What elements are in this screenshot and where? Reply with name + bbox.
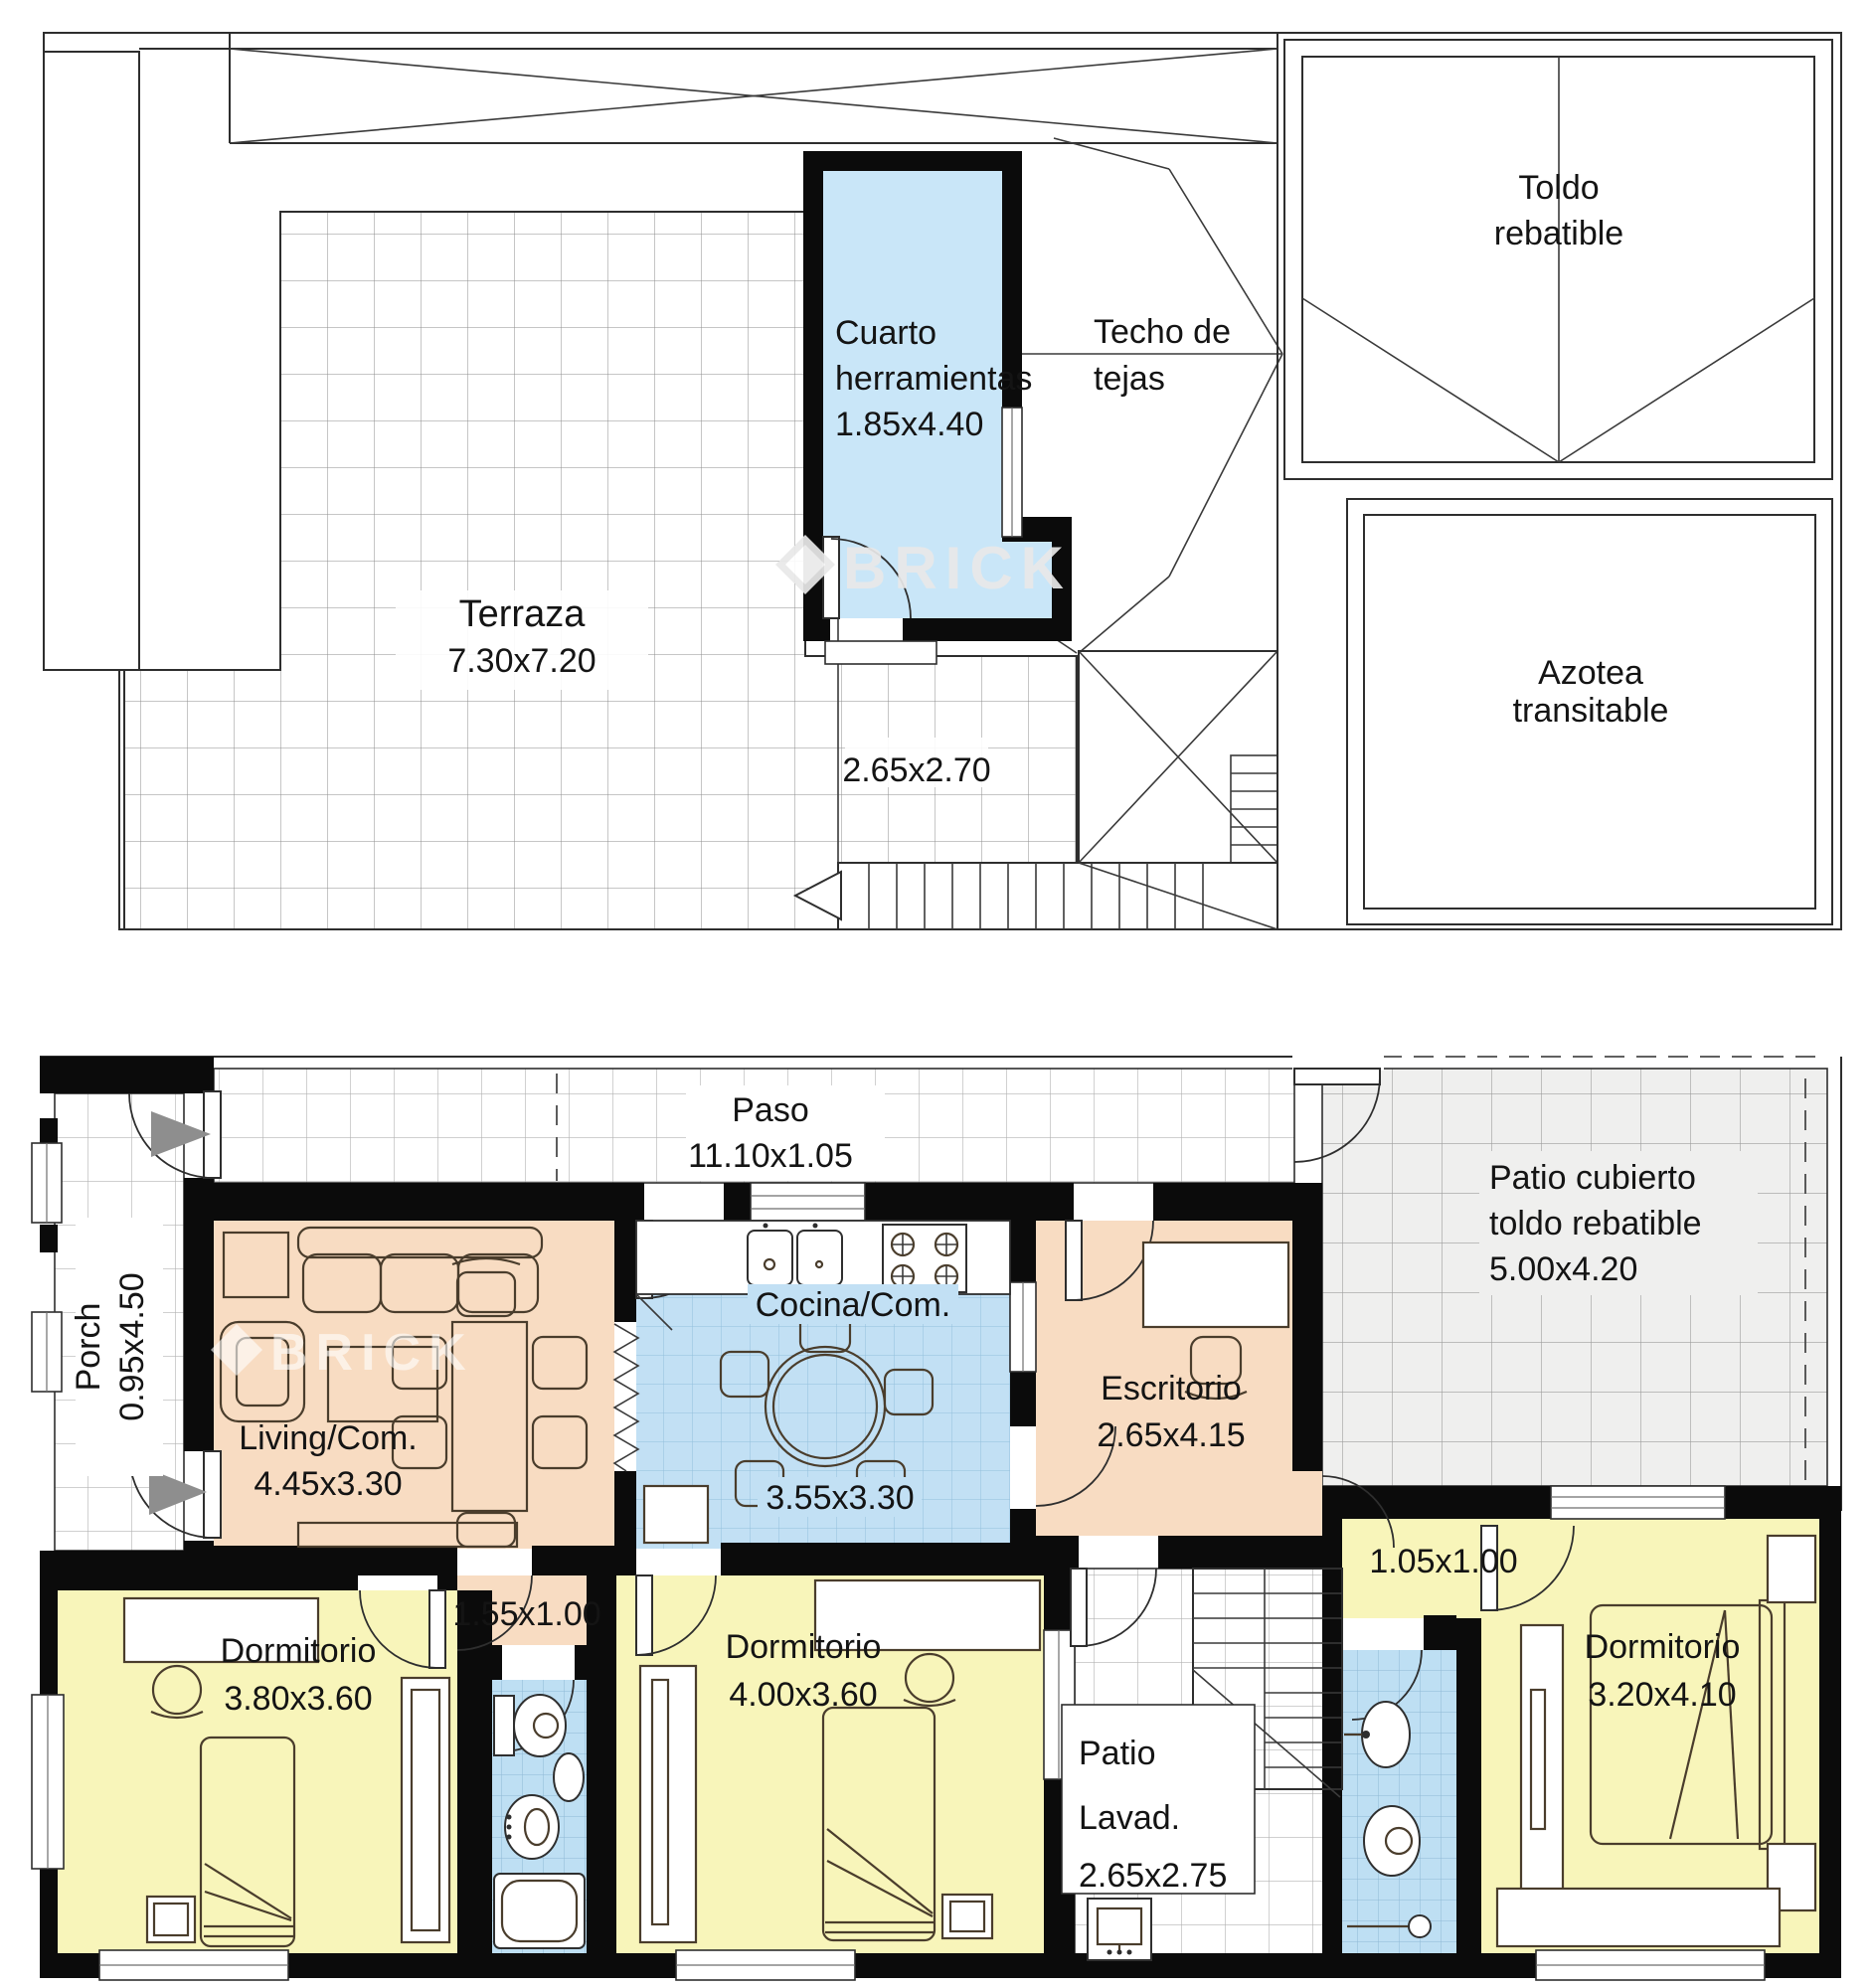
label-porch-name: Porch — [70, 1303, 107, 1392]
window — [751, 1183, 865, 1221]
door-leaf — [1071, 1569, 1087, 1646]
label-living-dims: 4.45x3.30 — [254, 1465, 402, 1503]
label-upper-patio-dims: 2.65x2.70 — [842, 751, 990, 789]
label-terraza-name: Terraza — [459, 593, 587, 635]
door-leaf — [204, 1451, 221, 1538]
label-dorm1-name: Dormitorio — [221, 1632, 377, 1670]
label-cuarto-dims: 1.85x4.40 — [835, 406, 983, 443]
door-leaf — [823, 537, 839, 618]
label-patio-cubierto-dims: 5.00x4.20 — [1489, 1250, 1637, 1288]
label-azotea-line1: Azotea — [1538, 654, 1643, 692]
label-terraza-dims: 7.30x7.20 — [447, 642, 596, 680]
lower-plan: Paso 11.10x1.05 Porch 0.95x4.50 Living/C… — [32, 1052, 1841, 1980]
door-leaf — [429, 1590, 445, 1668]
label-porch-dims: 0.95x4.50 — [113, 1272, 151, 1420]
label-hall-dims: 1.55x1.00 — [452, 1595, 600, 1633]
radiator-zigzag — [614, 1324, 638, 1471]
bidet — [505, 1795, 559, 1859]
window — [1551, 1486, 1725, 1519]
door-gap — [1292, 1471, 1322, 1536]
label-patio-lavadero-line1: Patio — [1079, 1735, 1156, 1772]
kitchen-sink — [797, 1231, 842, 1285]
label-cuarto-line2: herramientas — [835, 360, 1032, 398]
label-toldo-line2: rebatible — [1494, 215, 1623, 252]
label-dorm3-name: Dormitorio — [1585, 1628, 1741, 1666]
label-living-name: Living/Com. — [239, 1419, 418, 1457]
wardrobe — [402, 1678, 449, 1942]
threshold — [825, 641, 936, 664]
label-dorm2-name: Dormitorio — [726, 1628, 882, 1666]
upper-left-column — [44, 52, 139, 670]
label-azotea-line2: transitable — [1513, 692, 1669, 730]
label-patio-cubierto-line2: toldo rebatible — [1489, 1205, 1702, 1242]
washbasin — [554, 1753, 584, 1801]
upper-plan: Terraza 7.30x7.20 2.65x2.70 Cuarto herra… — [44, 33, 1841, 929]
label-dorm3-dims: 3.20x4.10 — [1588, 1676, 1736, 1714]
door-leaf — [636, 1575, 652, 1655]
door-leaf — [1066, 1221, 1082, 1300]
label-paso-name: Paso — [732, 1091, 809, 1129]
label-techo-line2: tejas — [1094, 360, 1165, 398]
label-patio-cubierto-line1: Patio cubierto — [1489, 1159, 1696, 1197]
nightstand — [1768, 1536, 1815, 1602]
label-escritorio-name: Escritorio — [1101, 1370, 1242, 1408]
label-patio-lavadero-line2: Lavad. — [1079, 1799, 1180, 1837]
kitchen-cabinet — [644, 1486, 708, 1543]
stove — [883, 1225, 966, 1292]
label-cocina-dims: 3.55x3.30 — [766, 1479, 914, 1517]
toilet-tank — [494, 1696, 514, 1755]
label-patio-lavadero-dims: 2.65x2.75 — [1079, 1857, 1227, 1895]
label-dorm2-dims: 4.00x3.60 — [729, 1676, 877, 1714]
floorplan-canvas: Terraza 7.30x7.20 2.65x2.70 Cuarto herra… — [0, 0, 1872, 1988]
kitchen-sink — [748, 1231, 792, 1285]
wardrobe — [1521, 1625, 1563, 1894]
svg-text:BRICK: BRICK — [270, 1324, 474, 1382]
svg-text:BRICK: BRICK — [843, 535, 1072, 601]
label-cuarto-line1: Cuarto — [835, 314, 936, 352]
door-leaf — [1294, 1069, 1380, 1084]
room-bath-2 — [1342, 1650, 1456, 1953]
label-dorm1-dims: 3.80x3.60 — [224, 1680, 372, 1718]
desk — [1143, 1242, 1288, 1327]
label-paso-dims: 11.10x1.05 — [688, 1137, 853, 1175]
label-cocina-name: Cocina/Com. — [756, 1286, 951, 1324]
label-escritorio-dims: 2.65x4.15 — [1097, 1416, 1245, 1454]
toldo-box — [1277, 33, 1841, 929]
label-hall2-dims: 1.05x1.00 — [1369, 1543, 1517, 1580]
dresser — [1497, 1889, 1780, 1946]
laundry-sink — [1088, 1899, 1151, 1960]
floorplan-svg: Terraza 7.30x7.20 2.65x2.70 Cuarto herra… — [0, 0, 1872, 1988]
label-toldo-line1: Toldo — [1518, 169, 1599, 207]
label-techo-line1: Techo de — [1094, 313, 1231, 351]
